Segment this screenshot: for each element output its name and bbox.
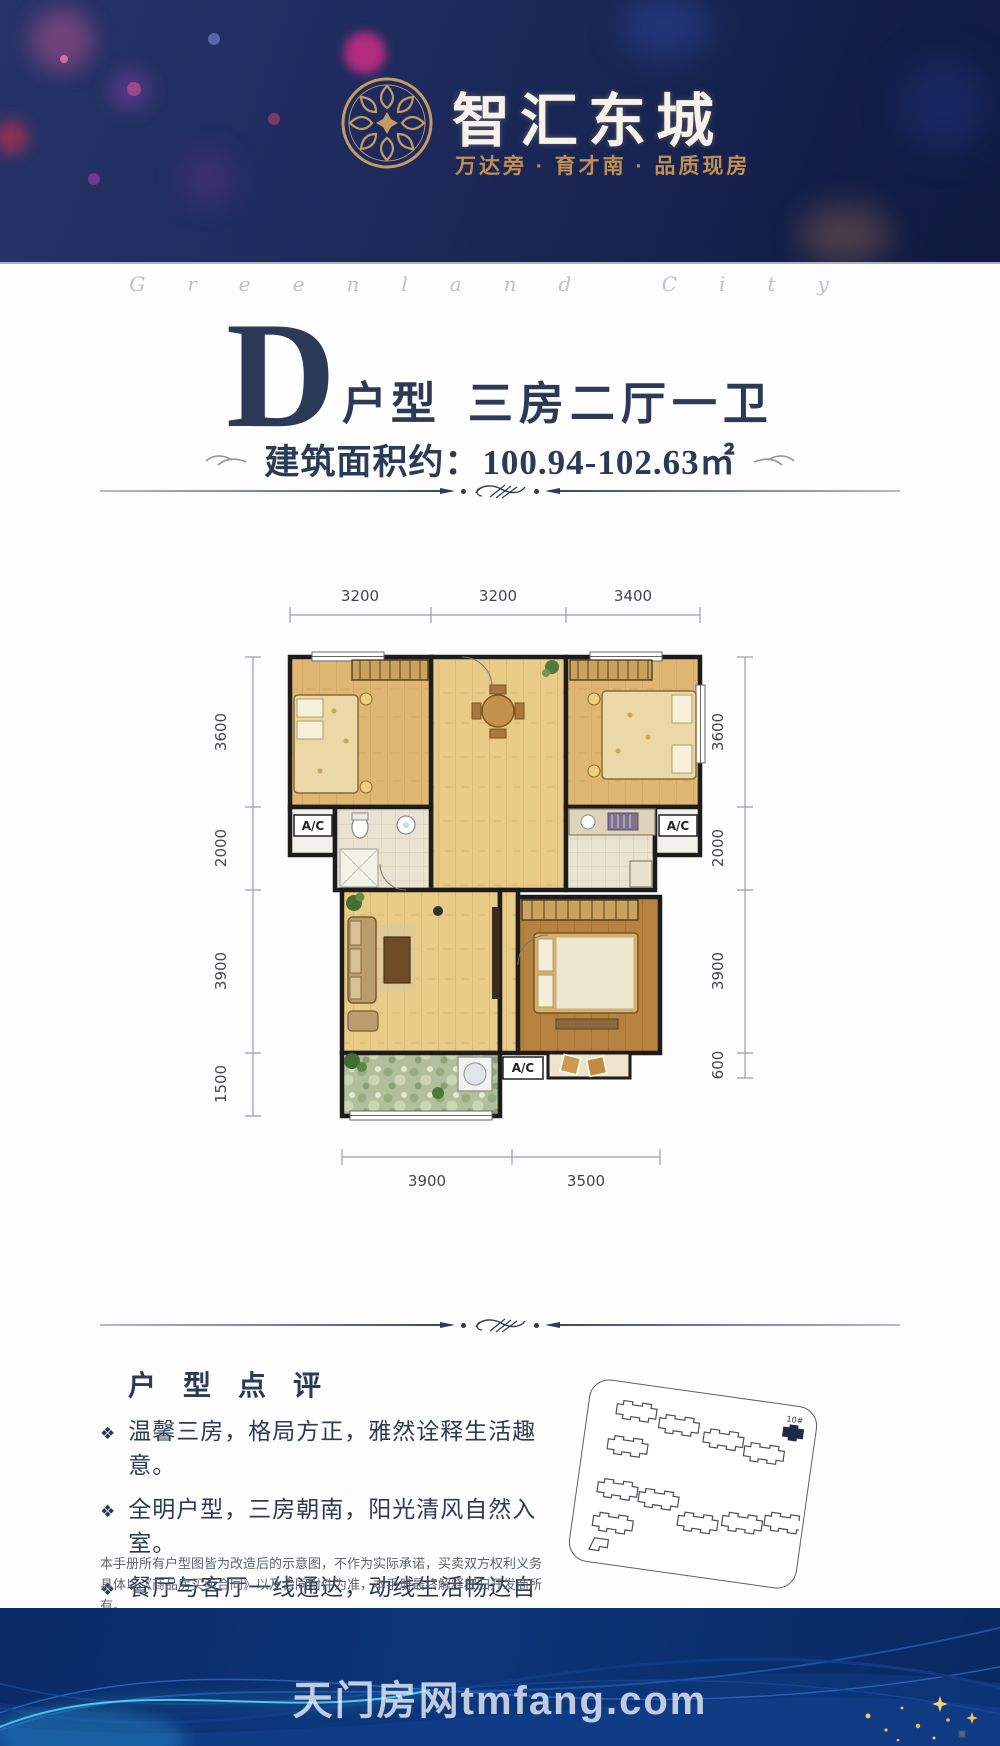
area-row: 建筑面积约： 100.94-102.63㎡ bbox=[0, 434, 1000, 485]
bokeh-light bbox=[110, 70, 150, 110]
bokeh-light bbox=[344, 32, 386, 74]
ac-label: A/C bbox=[667, 819, 690, 833]
ac-label: A/C bbox=[302, 819, 325, 833]
dim-label: 2000 bbox=[709, 829, 727, 867]
site-watermark: 天门房网tmfang.com bbox=[0, 1668, 1000, 1726]
area-label: 建筑面积约： bbox=[264, 434, 480, 485]
bokeh-light bbox=[60, 55, 68, 63]
siteplan-map: 10# bbox=[566, 1377, 819, 1591]
medallion-rosette-icon bbox=[340, 76, 434, 170]
divider-dot bbox=[461, 1323, 466, 1328]
diamond-bullet-icon: ❖ bbox=[100, 1502, 116, 1522]
dim-label: 3600 bbox=[709, 713, 727, 751]
dim-label: 3900 bbox=[408, 1172, 446, 1190]
flourish-left-icon bbox=[204, 452, 248, 468]
dim-label: 1500 bbox=[212, 1065, 230, 1103]
calligraphy-swirl-icon bbox=[472, 1316, 528, 1334]
unit-letter: D bbox=[226, 318, 336, 434]
brand-logo bbox=[340, 76, 434, 170]
divider-arrow-icon bbox=[440, 488, 455, 494]
brand-subtitle: 万达旁 · 育才南 · 品质现房 bbox=[455, 150, 750, 180]
divider-line bbox=[100, 490, 440, 492]
dim-label: 600 bbox=[709, 1051, 727, 1080]
bokeh-light bbox=[0, 120, 28, 154]
script-watermark: Greenland City bbox=[0, 272, 1000, 296]
divider-line bbox=[100, 1324, 440, 1326]
calligraphy-swirl-icon bbox=[472, 482, 528, 500]
dim-label: 3200 bbox=[479, 587, 517, 605]
flyer-page: 智汇东城 万达旁 · 育才南 · 品质现房 Greenland City D 户… bbox=[0, 0, 1000, 1746]
bullet-text: 全明户型，三房朝南，阳光清风自然入室。 bbox=[128, 1490, 580, 1558]
bullet-text: 温馨三房，格局方正，雅然诠释生活趣意。 bbox=[128, 1412, 580, 1480]
dim-label: 3600 bbox=[212, 713, 230, 751]
bokeh-light bbox=[180, 150, 236, 206]
area-value: 100.94-102.63㎡ bbox=[482, 434, 735, 485]
dim-label: 3900 bbox=[212, 952, 230, 990]
divider-line bbox=[560, 1324, 900, 1326]
review-heading: 户 型 点 评 bbox=[128, 1364, 331, 1404]
bokeh-light bbox=[620, 0, 710, 60]
footer-banner: 天门房网tmfang.com bbox=[0, 1608, 1000, 1746]
flourish-right-icon bbox=[752, 452, 796, 468]
review-bullet: ❖ 全明户型，三房朝南，阳光清风自然入室。 bbox=[100, 1490, 580, 1558]
furniture-bedroom-bottomright bbox=[518, 900, 638, 1029]
dim-label: 3900 bbox=[709, 952, 727, 990]
diamond-bullet-icon: ❖ bbox=[100, 1424, 116, 1444]
ornament-divider bbox=[100, 1316, 900, 1334]
dim-label: 3400 bbox=[614, 587, 652, 605]
building-number-label: 10# bbox=[786, 1414, 804, 1425]
floorplan: 3200 3200 3400 3600 2000 3900 1500 3600 … bbox=[200, 545, 760, 1215]
review-bullet: ❖ 温馨三房，格局方正，雅然诠释生活趣意。 bbox=[100, 1412, 580, 1480]
divider-arrow-icon bbox=[545, 488, 560, 494]
bokeh-light bbox=[900, 60, 990, 150]
dim-label: 2000 bbox=[212, 829, 230, 867]
ac-label: A/C bbox=[512, 1061, 535, 1075]
divider-line bbox=[560, 490, 900, 492]
unit-title: D 户型 三房二厅一卫 bbox=[0, 318, 1000, 434]
bokeh-light bbox=[800, 205, 890, 264]
divider-dot bbox=[534, 1323, 539, 1328]
brand-title: 智汇东城 bbox=[452, 74, 724, 158]
dim-label: 3200 bbox=[341, 587, 379, 605]
unit-rooms-label: 三房二厅一卫 bbox=[468, 367, 774, 434]
siteplan-buildings: 10# bbox=[568, 1378, 816, 1587]
highlighted-building bbox=[782, 1424, 804, 1442]
divider-dot bbox=[461, 489, 466, 494]
dim-label: 3500 bbox=[567, 1172, 605, 1190]
unit-type-label: 户型 bbox=[342, 367, 440, 434]
divider-arrow-icon bbox=[440, 1322, 455, 1328]
divider-arrow-icon bbox=[545, 1322, 560, 1328]
ornament-divider bbox=[100, 482, 900, 500]
header-banner: 智汇东城 万达旁 · 育才南 · 品质现房 bbox=[0, 0, 1000, 264]
divider-dot bbox=[534, 489, 539, 494]
